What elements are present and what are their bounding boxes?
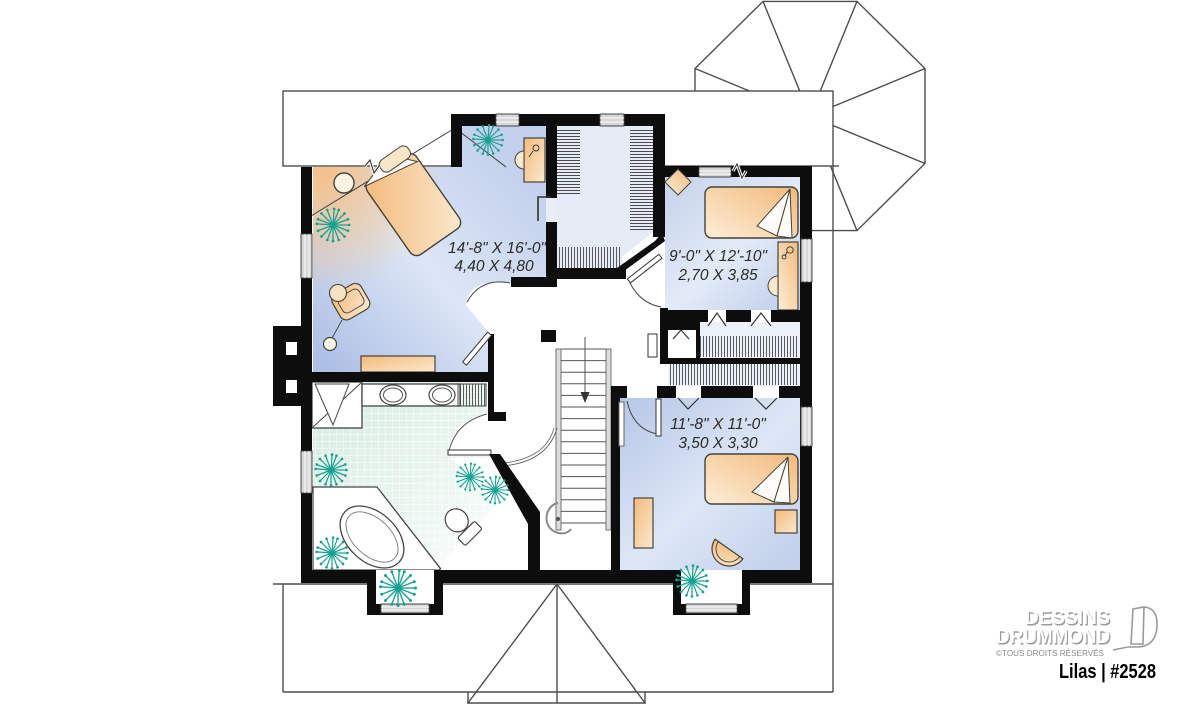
svg-text:Lilas | #2528: Lilas | #2528 xyxy=(1059,661,1156,683)
svg-text:11'-8" X 11'-0": 11'-8" X 11'-0" xyxy=(670,416,767,433)
svg-text:2,70 X 3,85: 2,70 X 3,85 xyxy=(677,267,758,284)
svg-text:3,50 X 3,30: 3,50 X 3,30 xyxy=(678,435,758,452)
svg-text:9'-0" X 12'-10": 9'-0" X 12'-10" xyxy=(669,248,768,265)
svg-text:DRUMMOND: DRUMMOND xyxy=(996,625,1110,648)
svg-text:14'-8" X 16'-0": 14'-8" X 16'-0" xyxy=(448,240,547,257)
svg-text:4,40 X 4,80: 4,40 X 4,80 xyxy=(454,258,534,275)
svg-text:©TOUS DROITS RÉSERVÉS: ©TOUS DROITS RÉSERVÉS xyxy=(996,649,1104,658)
